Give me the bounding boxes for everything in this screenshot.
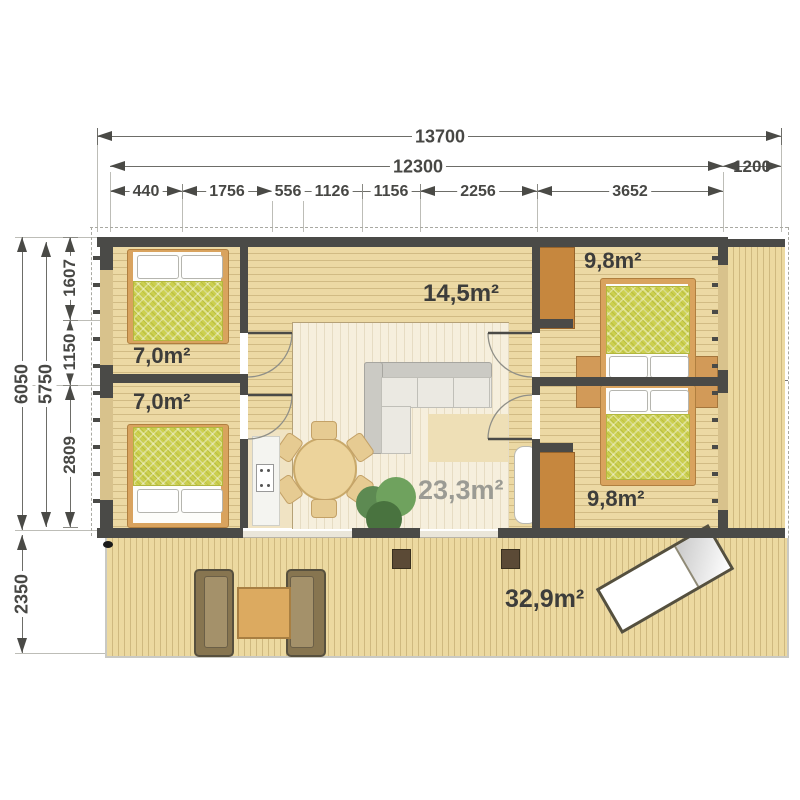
area-label-hallway: 14,5m² — [423, 280, 499, 308]
dim-label-2809: 2809 — [60, 433, 80, 477]
pillow — [181, 489, 223, 513]
arrow-down-icon — [17, 515, 27, 530]
dim-label-12300: 12300 — [390, 157, 446, 178]
pillow — [181, 255, 223, 279]
pillow — [609, 356, 648, 378]
arrow-down-icon — [17, 638, 27, 653]
chair — [311, 421, 337, 440]
deck-side-strip — [728, 247, 785, 538]
wall-right-battens — [712, 256, 718, 526]
area-label-bedroom-right-top: 9,8m² — [584, 248, 641, 274]
dim-label-1156: 1156 — [371, 183, 412, 201]
terrace-seat — [194, 569, 234, 657]
arrow-left-icon — [420, 186, 435, 196]
dim-label-2256: 2256 — [457, 183, 499, 201]
rug — [428, 414, 508, 462]
arrow-up-icon — [65, 385, 75, 400]
wall-hall-right — [532, 439, 540, 528]
dim-label-1126: 1126 — [312, 183, 353, 201]
deck-post — [501, 549, 520, 569]
arrow-right-icon — [257, 186, 272, 196]
wardrobe — [537, 247, 575, 329]
boundary-dashed-left — [91, 227, 92, 536]
arrow-up-icon — [17, 237, 27, 252]
arrow-up-icon — [65, 237, 75, 252]
dim-label-556: 556 — [272, 183, 305, 201]
bed-duvet — [606, 414, 690, 480]
area-label-bedroom-right-bottom: 9,8m² — [587, 486, 644, 512]
survey-dot — [103, 541, 113, 548]
wardrobe — [537, 452, 575, 530]
arrow-up-icon — [41, 242, 51, 257]
wall-left — [100, 500, 113, 538]
wall-hall-left — [240, 439, 248, 528]
arrow-down-icon — [65, 512, 75, 527]
dim-label-6050: 6050 — [12, 361, 33, 407]
arrow-right-icon — [766, 131, 781, 141]
terrace-seat — [286, 569, 326, 657]
wall-hall-right — [532, 247, 540, 333]
dim-label-1150: 1150 — [60, 331, 80, 374]
wardrobe-edge — [537, 443, 573, 452]
bed-duvet — [606, 286, 690, 354]
sofa-cushions — [381, 377, 492, 408]
arrow-right-icon — [708, 186, 723, 196]
arrow-up-icon — [17, 535, 27, 550]
wardrobe-edge — [537, 319, 573, 328]
arrow-left-icon — [110, 186, 125, 196]
dim-label-1607: 1607 — [60, 256, 80, 300]
arrow-left-icon — [537, 186, 552, 196]
arrow-right-icon — [708, 161, 723, 171]
pillow — [609, 390, 648, 412]
dim-label-440: 440 — [130, 183, 163, 201]
area-label-terrace: 32,9m² — [505, 585, 584, 614]
pillow — [137, 255, 179, 279]
wall-hall-left — [240, 247, 248, 333]
wall-left-battens — [93, 256, 100, 526]
glazed-door — [243, 530, 352, 538]
arrow-down-icon — [41, 512, 51, 527]
bed-duvet — [133, 427, 223, 486]
wall-top — [97, 237, 728, 247]
chair — [311, 499, 337, 518]
dim-label-13700: 13700 — [412, 127, 468, 148]
pillow — [650, 390, 689, 412]
glazed-door — [420, 530, 498, 538]
deck-post — [392, 549, 411, 569]
pillow — [650, 356, 689, 378]
floor-plan: 13700 12300 1200 — [0, 0, 800, 800]
arrow-left-icon — [97, 131, 112, 141]
bed-duvet — [133, 281, 223, 341]
arrow-right-icon — [522, 186, 537, 196]
coffee-table — [237, 587, 291, 639]
area-label-bedroom-left-top: 7,0m² — [133, 343, 190, 369]
wall-right — [718, 510, 728, 528]
stove-icon — [256, 464, 274, 492]
wall-divider-left-bedrooms — [100, 374, 248, 383]
dim-label-1200: 1200 — [730, 157, 774, 177]
arrow-left-icon — [110, 161, 125, 171]
area-label-living-room: 23,3m² — [418, 475, 504, 506]
pillow — [137, 489, 179, 513]
area-label-bedroom-left-bottom: 7,0m² — [133, 389, 190, 415]
wall-left — [100, 237, 113, 270]
wall-divider-right-bedrooms — [532, 377, 728, 386]
dim-label-2350: 2350 — [12, 571, 33, 617]
wall-right — [718, 247, 728, 265]
arrow-right-icon — [167, 186, 182, 196]
dim-label-3652: 3652 — [609, 183, 651, 201]
wall-bottom — [97, 528, 243, 538]
arrow-down-icon — [65, 305, 75, 320]
sofa-cushion — [381, 406, 411, 454]
wall-bottom — [352, 528, 420, 538]
boundary-dashed-top — [90, 227, 788, 228]
dim-label-5750: 5750 — [36, 361, 57, 407]
dim-tick — [781, 128, 782, 145]
wall-bottom — [498, 528, 785, 538]
wall-top-extension — [728, 239, 785, 247]
dim-label-1756: 1756 — [206, 183, 248, 201]
arrow-left-icon — [182, 186, 197, 196]
